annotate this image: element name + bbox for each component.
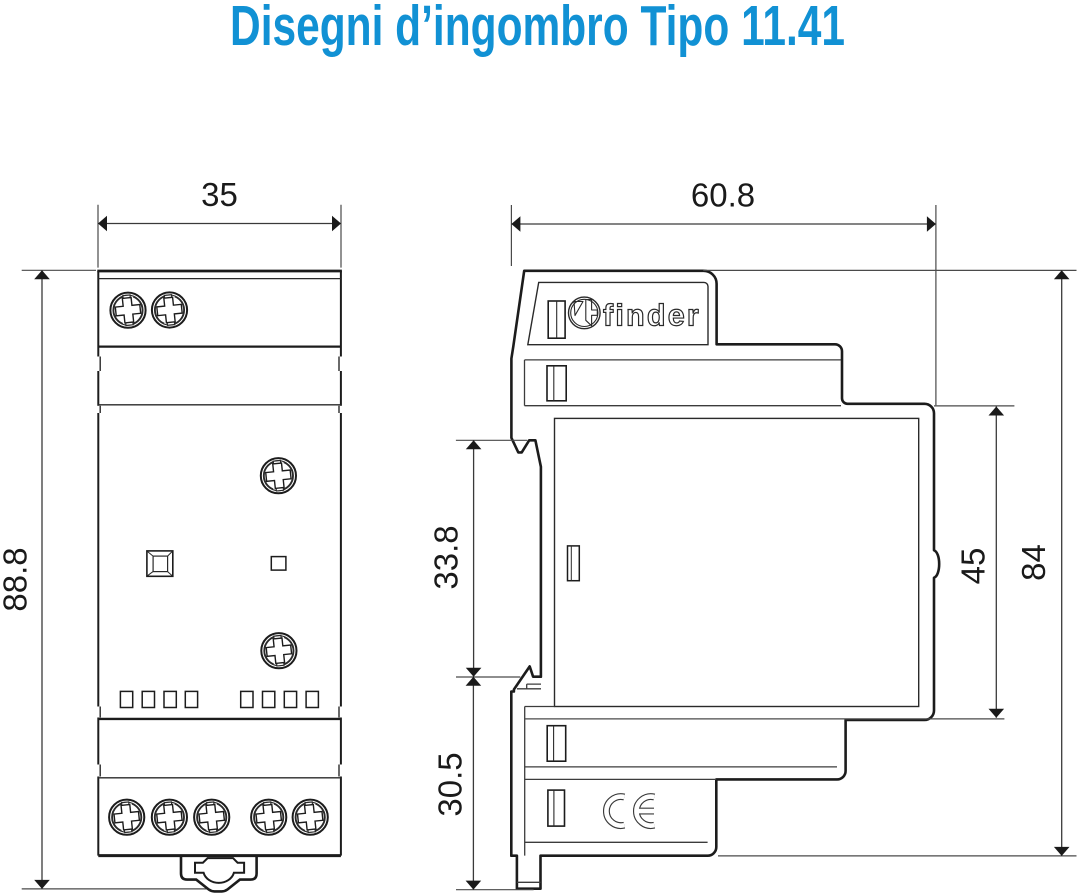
svg-text:60.8: 60.8 (691, 177, 755, 214)
svg-text:33.8: 33.8 (427, 525, 464, 589)
svg-text:84: 84 (1015, 544, 1052, 581)
svg-text:45: 45 (954, 548, 991, 585)
svg-text:88.8: 88.8 (0, 547, 33, 611)
svg-text:35: 35 (201, 176, 238, 213)
svg-text:finder: finder (603, 299, 701, 333)
svg-text:30.5: 30.5 (431, 752, 468, 816)
svg-text:Disegni d’ingombro Tipo 11.41: Disegni d’ingombro Tipo 11.41 (230, 0, 845, 57)
